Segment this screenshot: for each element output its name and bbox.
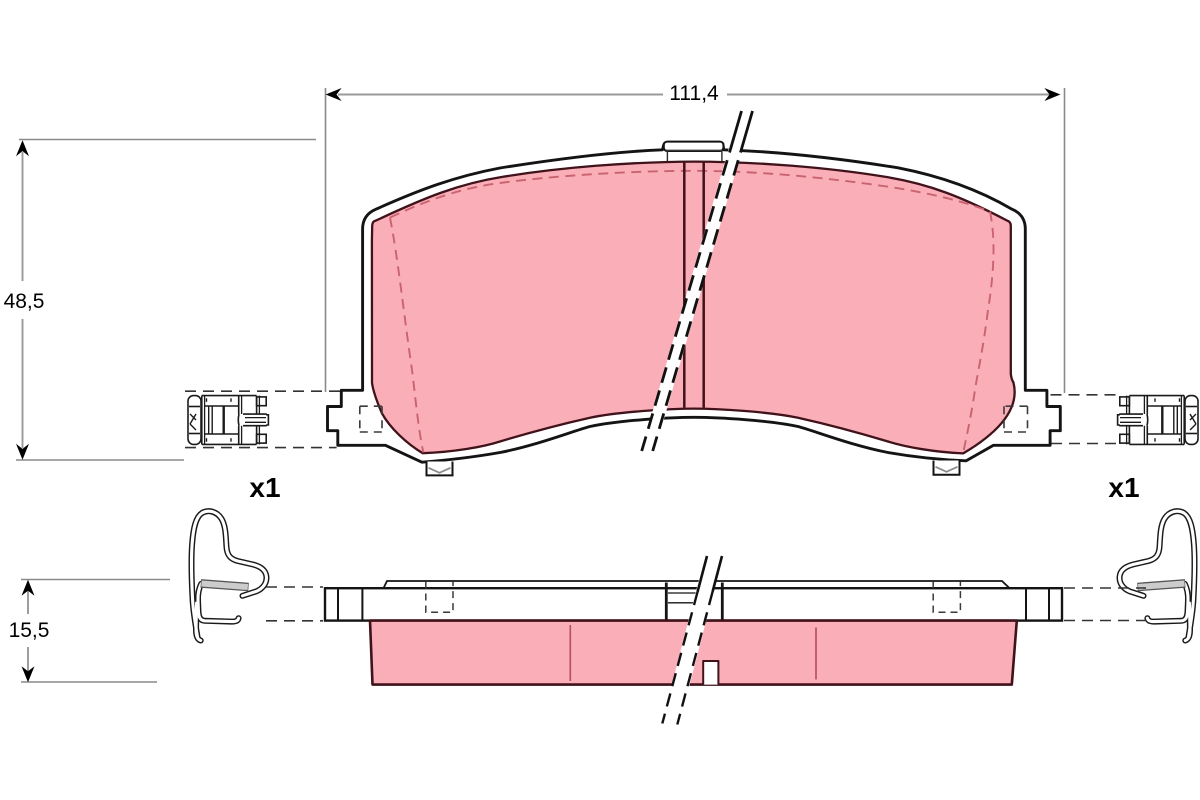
svg-text:x1: x1 bbox=[249, 472, 280, 503]
svg-text:111,4: 111,4 bbox=[669, 82, 719, 105]
svg-text:x1: x1 bbox=[1108, 472, 1139, 503]
svg-text:48,5: 48,5 bbox=[4, 290, 45, 313]
svg-text:15,5: 15,5 bbox=[9, 619, 50, 642]
